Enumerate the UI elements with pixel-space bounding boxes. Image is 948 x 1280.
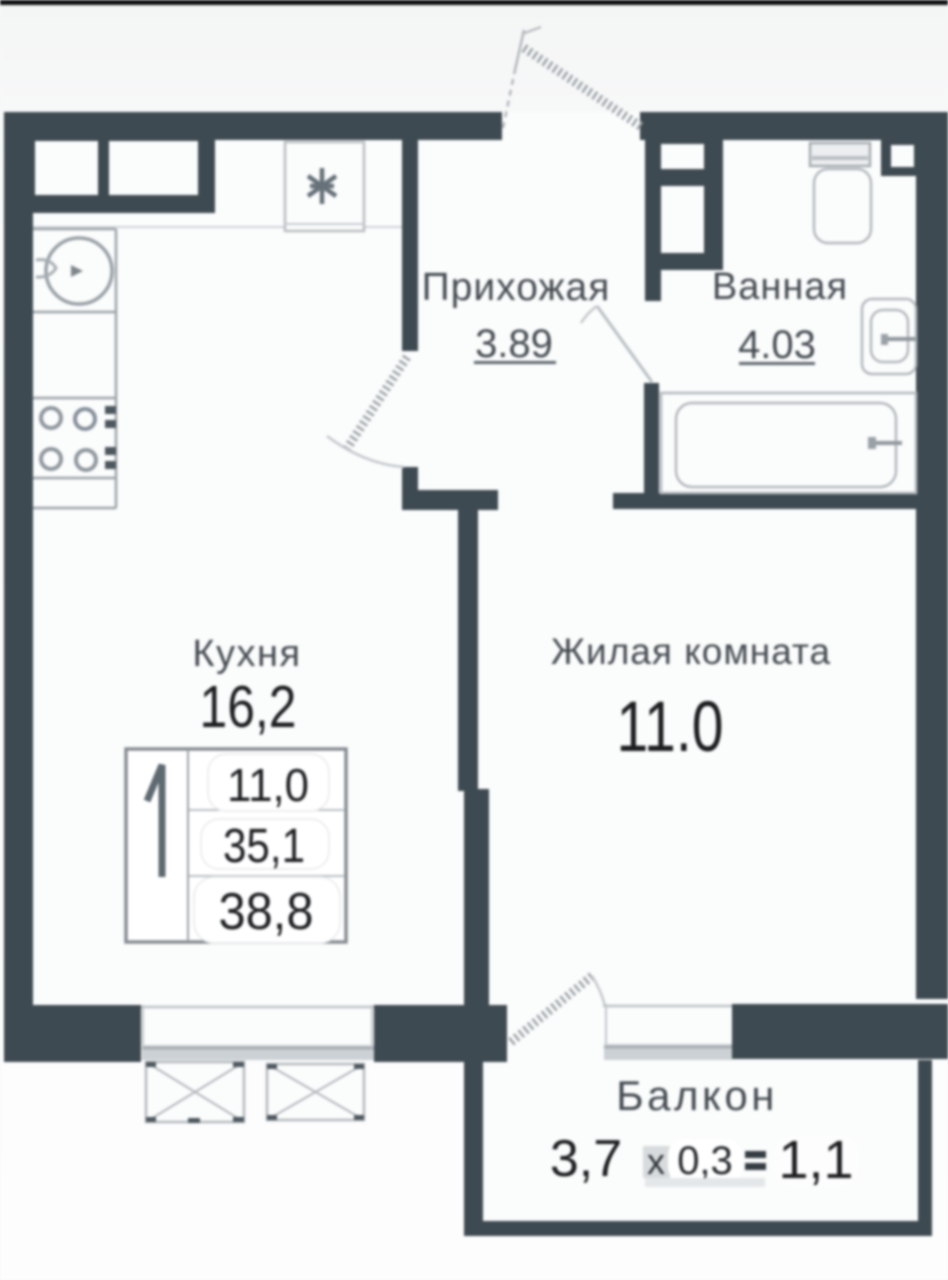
svg-text:38,8: 38,8 bbox=[219, 883, 314, 941]
svg-text:1,1: 1,1 bbox=[778, 1130, 853, 1190]
svg-text:3.89: 3.89 bbox=[475, 322, 553, 366]
svg-text:0,3: 0,3 bbox=[677, 1139, 733, 1183]
svg-text:х: х bbox=[647, 1141, 665, 1182]
svg-text:16,2: 16,2 bbox=[200, 674, 297, 740]
svg-text:11.0: 11.0 bbox=[617, 688, 724, 767]
svg-text:Кухня: Кухня bbox=[192, 633, 301, 675]
svg-text:35,1: 35,1 bbox=[223, 820, 305, 873]
svg-text:4.03: 4.03 bbox=[738, 323, 816, 367]
svg-text:3,7: 3,7 bbox=[550, 1130, 622, 1188]
svg-text:Ванная: Ванная bbox=[712, 266, 848, 308]
svg-text:Прихожая: Прихожая bbox=[422, 266, 611, 309]
svg-text:Жилая комната: Жилая комната bbox=[551, 631, 831, 672]
svg-text:Балкон: Балкон bbox=[616, 1072, 778, 1119]
svg-text:11,0: 11,0 bbox=[227, 759, 309, 811]
